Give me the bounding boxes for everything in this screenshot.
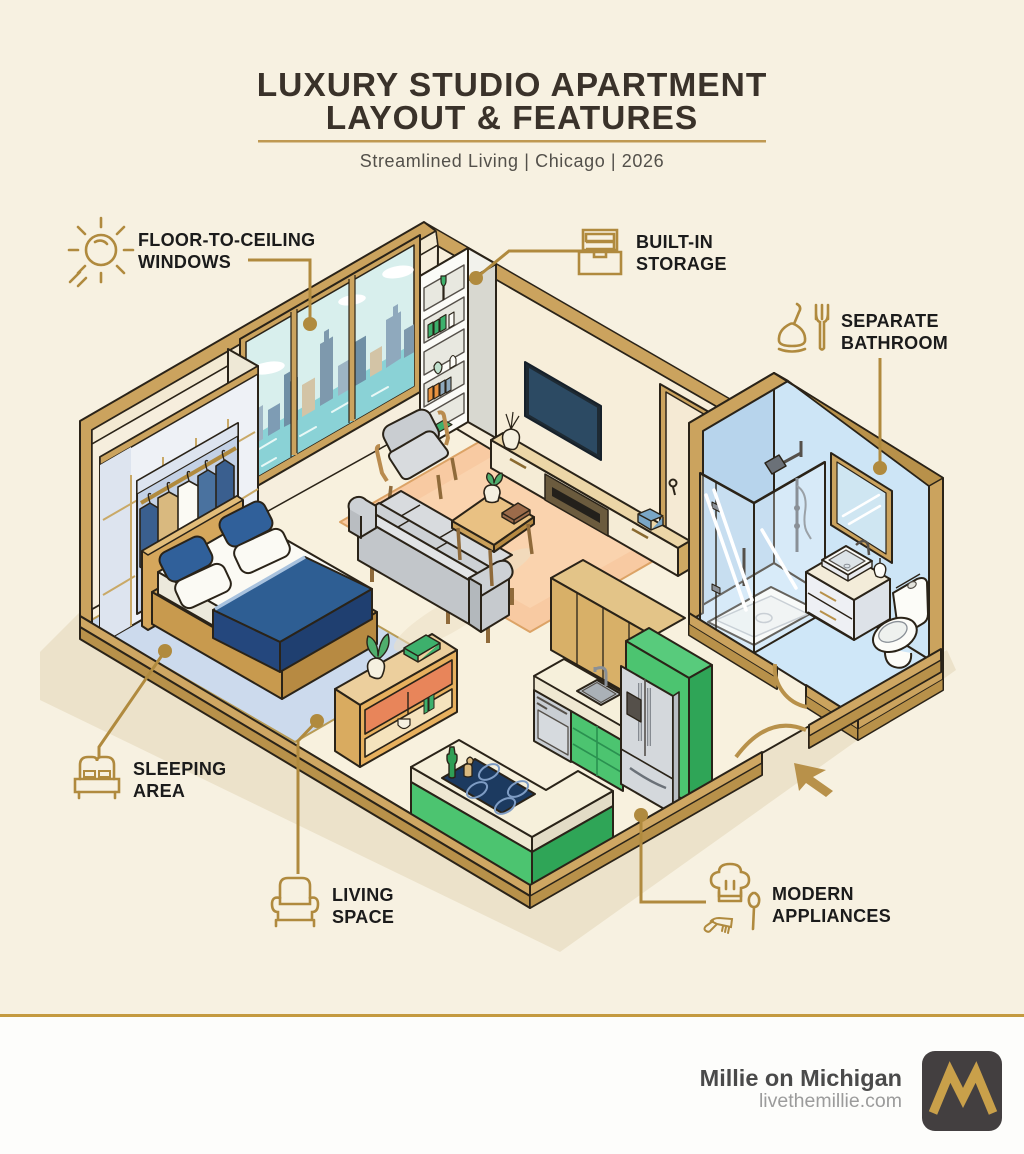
svg-text:BATHROOM: BATHROOM	[841, 333, 948, 353]
svg-text:AREA: AREA	[133, 781, 185, 801]
svg-text:BUILT-IN: BUILT-IN	[636, 232, 713, 252]
svg-text:LUXURY STUDIO APARTMENT: LUXURY STUDIO APARTMENT	[257, 67, 768, 104]
svg-text:Streamlined Living | Chicago |: Streamlined Living | Chicago | 2026	[360, 151, 665, 171]
svg-text:SEPARATE: SEPARATE	[841, 311, 939, 331]
svg-text:FLOOR-TO-CEILING: FLOOR-TO-CEILING	[138, 230, 315, 250]
svg-text:SLEEPING: SLEEPING	[133, 759, 226, 779]
svg-text:MODERN: MODERN	[772, 884, 854, 904]
svg-text:STORAGE: STORAGE	[636, 254, 727, 274]
svg-text:SPACE: SPACE	[332, 907, 394, 927]
svg-text:APPLIANCES: APPLIANCES	[772, 906, 891, 926]
svg-text:LAYOUT & FEATURES: LAYOUT & FEATURES	[326, 100, 699, 137]
svg-text:WINDOWS: WINDOWS	[138, 252, 231, 272]
svg-text:Millie on Michigan: Millie on Michigan	[700, 1065, 902, 1091]
svg-text:LIVING: LIVING	[332, 885, 394, 905]
svg-text:livethemillie.com: livethemillie.com	[759, 1090, 902, 1112]
